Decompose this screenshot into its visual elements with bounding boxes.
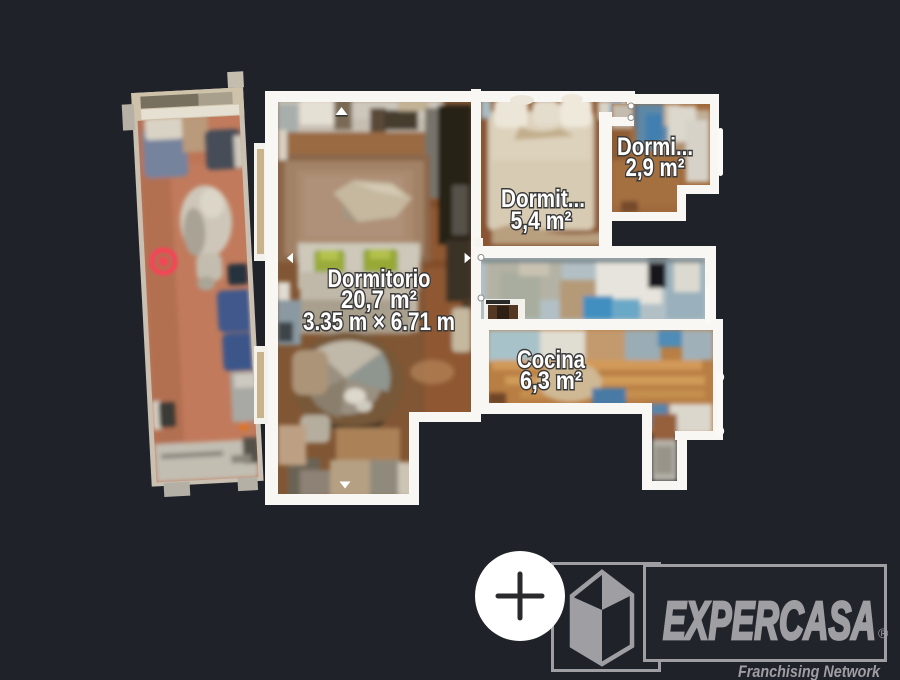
svg-text:2,9 m²: 2,9 m² — [626, 154, 685, 182]
svg-text:®: ® — [878, 625, 889, 641]
svg-text:EXPERCASA: EXPERCASA — [663, 591, 876, 651]
svg-text:5,4 m²: 5,4 m² — [511, 207, 572, 235]
svg-text:6,3 m²: 6,3 m² — [520, 367, 582, 395]
svg-text:3.35 m × 6.71 m: 3.35 m × 6.71 m — [303, 308, 455, 336]
svg-text:Franchising Network: Franchising Network — [738, 662, 881, 680]
